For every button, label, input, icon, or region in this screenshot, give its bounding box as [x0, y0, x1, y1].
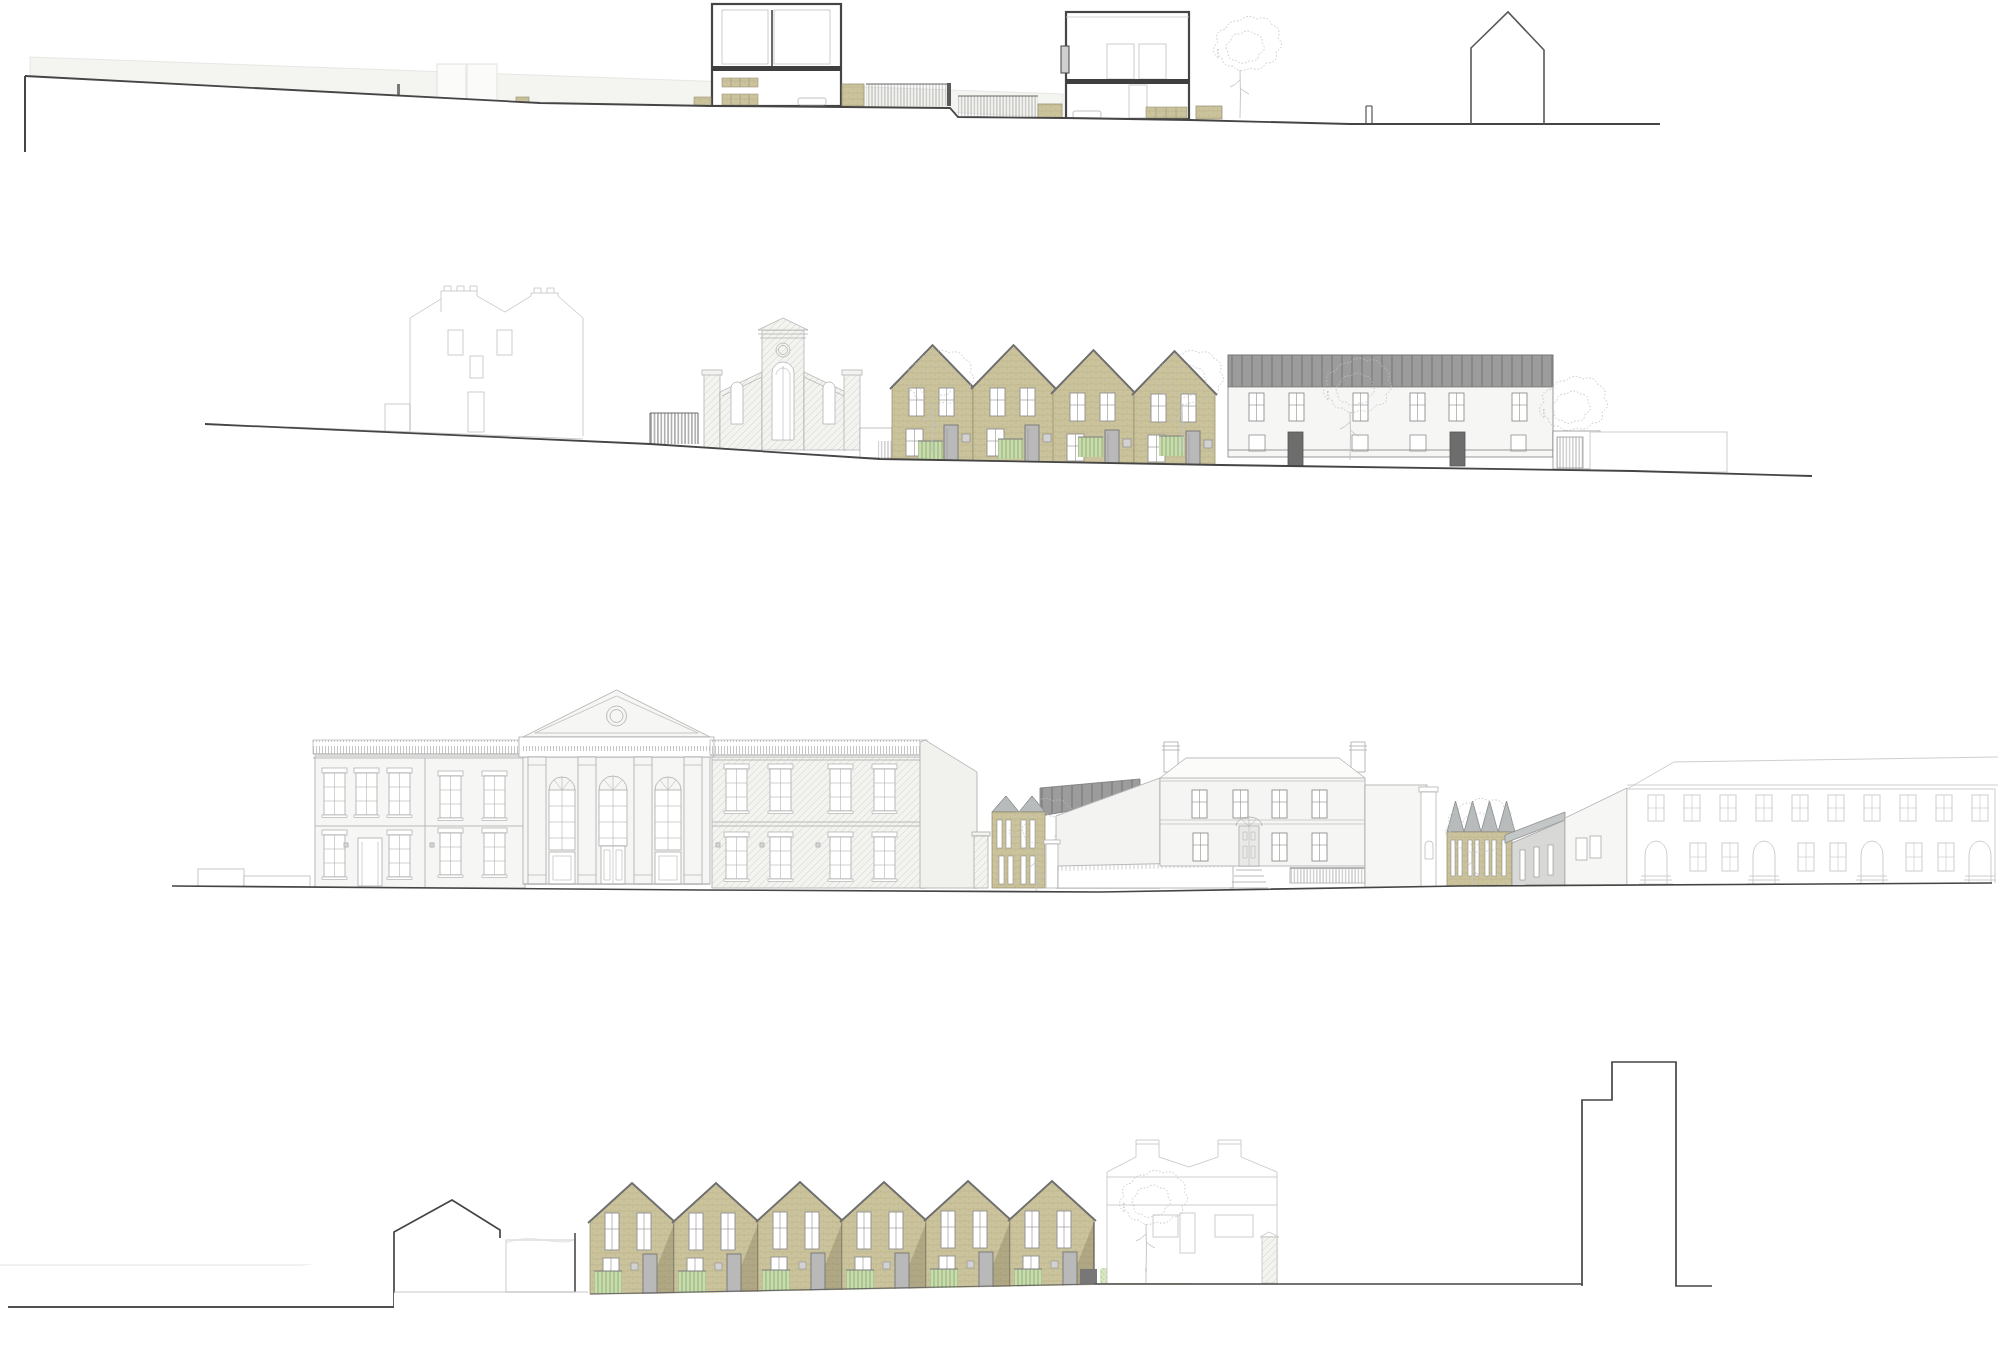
brick-pier — [842, 84, 864, 106]
front-door — [1450, 432, 1465, 466]
brick-pier — [1038, 104, 1062, 119]
arched-door-terrace — [1627, 757, 1998, 886]
flank-wall — [920, 740, 977, 888]
house-section-1 — [694, 4, 841, 106]
standing-seam-roof — [1228, 355, 1553, 387]
kitchen-units — [1146, 107, 1187, 118]
adjacent-building-outline — [1471, 12, 1544, 124]
low-wall-outline — [198, 869, 244, 888]
existing-wall-outline — [1590, 432, 1727, 472]
former-chapel-faint — [702, 318, 892, 458]
white-outbuilding — [1365, 785, 1427, 888]
timber-gate — [650, 413, 698, 444]
grey-monopitch-block — [1505, 812, 1565, 886]
neighbour-outline — [8, 1200, 500, 1307]
front-door — [1288, 432, 1303, 466]
row-site-section — [25, 4, 1660, 170]
brick-planter — [694, 97, 711, 106]
garden-fence — [866, 83, 951, 106]
entrance-steps — [1230, 870, 1268, 888]
sofa-outline — [798, 98, 826, 105]
brick-planter — [1196, 106, 1222, 119]
stepped-building-outline — [1582, 1062, 1712, 1286]
drawing-sheet: Architectural drawing — four street elev… — [0, 0, 2000, 1359]
facade — [1228, 387, 1553, 457]
arched-bay — [655, 777, 681, 884]
window-section — [1061, 46, 1069, 73]
dark-pier — [1080, 1269, 1097, 1284]
tree — [1214, 16, 1282, 118]
dentil-course — [523, 743, 710, 751]
new-rear-terrace-of-six — [588, 1181, 1097, 1294]
door-bay — [599, 776, 627, 884]
floor-slab — [1066, 79, 1189, 84]
victorian-terrace-left — [313, 740, 527, 888]
white-gable-end — [1565, 788, 1627, 886]
house-section-2 — [1061, 12, 1189, 119]
gate-pier — [1419, 787, 1438, 888]
gate-post — [1366, 106, 1372, 124]
sawtooth-roof — [1447, 801, 1515, 832]
sawtooth-block — [1446, 798, 1516, 900]
ground-mask — [172, 883, 1998, 930]
sofa-outline — [1073, 111, 1101, 118]
garden-fence — [958, 96, 1038, 119]
arched-bay — [549, 777, 575, 884]
doorway — [358, 838, 382, 886]
existing-semi-faint — [290, 286, 583, 439]
elevations-drawing: Architectural drawing — four street elev… — [0, 0, 2000, 1359]
row-street-elevation-b — [172, 690, 1998, 930]
pediment — [523, 690, 710, 737]
existing-gate-faint — [467, 64, 497, 104]
balustrade-parapet — [313, 740, 527, 754]
floor-slab — [712, 66, 841, 71]
georgian-villa — [1160, 742, 1382, 888]
row-rear-elevation — [0, 1062, 1712, 1359]
balustrade-parapet — [710, 740, 927, 755]
portico-chapel — [519, 690, 714, 884]
gate-pier — [1262, 1237, 1277, 1283]
existing-house-faint — [1107, 1140, 1279, 1283]
existing-white-terrace — [1228, 355, 1608, 478]
row-street-elevation-a — [205, 286, 1812, 510]
chimney-pier — [974, 836, 988, 888]
garden-walls — [506, 1233, 575, 1292]
fence-post — [947, 83, 951, 106]
new-terrace-of-four — [878, 345, 1224, 472]
stucco-terrace — [710, 740, 990, 888]
